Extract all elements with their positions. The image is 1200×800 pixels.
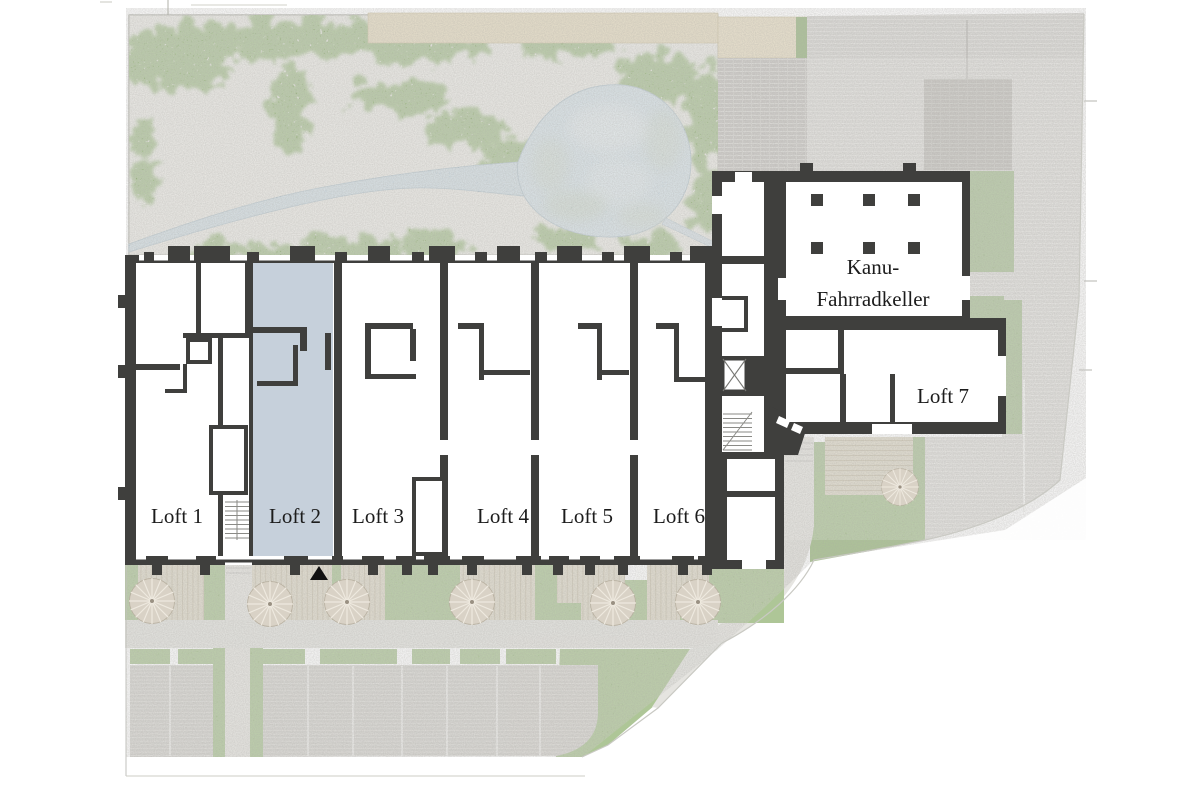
- svg-text:Loft 2: Loft 2: [269, 504, 321, 528]
- svg-text:Kanu-: Kanu-: [847, 255, 899, 279]
- svg-text:Loft 3: Loft 3: [352, 504, 404, 528]
- svg-text:Loft 5: Loft 5: [561, 504, 613, 528]
- svg-text:Loft 7: Loft 7: [917, 384, 969, 408]
- svg-text:Loft 1: Loft 1: [151, 504, 203, 528]
- svg-text:Loft 4: Loft 4: [477, 504, 529, 528]
- svg-text:Fahrradkeller: Fahrradkeller: [816, 287, 929, 311]
- svg-text:Loft 6: Loft 6: [653, 504, 705, 528]
